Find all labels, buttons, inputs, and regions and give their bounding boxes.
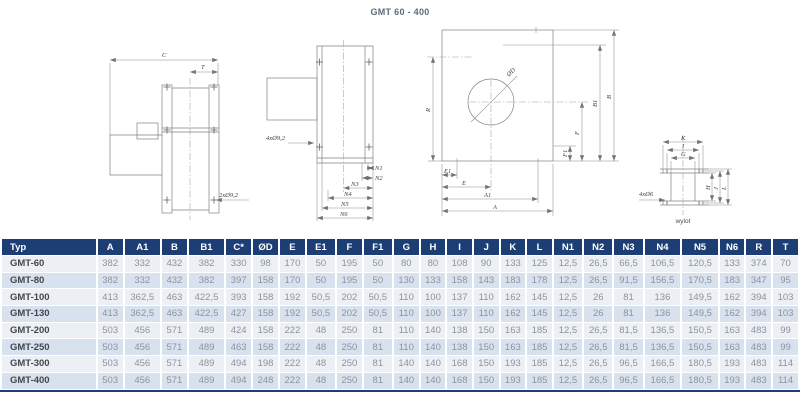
dim-label-j: J	[713, 186, 720, 190]
table-cell: 163	[720, 339, 745, 355]
table-cell: 50,5	[307, 306, 335, 322]
column-header: A	[98, 239, 123, 255]
page-title: GMT 60 - 400	[0, 7, 800, 17]
table-cell: 110	[394, 323, 419, 339]
table-cell: 50,5	[364, 289, 392, 305]
table-cell: 95	[773, 273, 798, 289]
table-cell: 26	[584, 306, 612, 322]
table-cell: 137	[447, 306, 472, 322]
table-cell: 96,5	[614, 373, 642, 389]
table-row: GMT-803823324323823971581705019550130133…	[2, 273, 798, 289]
table-cell: 108	[447, 256, 472, 272]
table-cell: 483	[746, 356, 771, 372]
table-cell: 250	[337, 323, 362, 339]
table-cell: 99	[773, 323, 798, 339]
table-cell: 81	[364, 323, 392, 339]
table-cell: 81,5	[614, 339, 642, 355]
table-cell: 163	[501, 323, 526, 339]
column-header: N2	[584, 239, 612, 255]
table-cell: 81	[364, 339, 392, 355]
table-cell: 456	[125, 373, 161, 389]
column-header: ØD	[253, 239, 278, 255]
table-cell: 422,5	[189, 306, 225, 322]
table-cell: 158	[253, 323, 278, 339]
table-cell: 382	[98, 256, 123, 272]
dim-label-l: L	[721, 186, 728, 191]
table-cell: 422,5	[189, 289, 225, 305]
table-cell: 489	[189, 373, 225, 389]
table-cell: 494	[226, 356, 251, 372]
dim-label-n1: N1	[374, 165, 383, 172]
table-cell: 248	[253, 373, 278, 389]
table-cell: 489	[189, 323, 225, 339]
table-cell: 26	[584, 289, 612, 305]
table-cell: 158	[253, 306, 278, 322]
table-cell: 202	[337, 289, 362, 305]
column-header: K	[501, 239, 526, 255]
table-cell: 138	[447, 339, 472, 355]
row-label: GMT-250	[2, 339, 96, 355]
table-cell: 26,5	[584, 273, 612, 289]
table-cell: 382	[189, 273, 225, 289]
table-cell: 136	[645, 289, 681, 305]
table-cell: 193	[720, 373, 745, 389]
table-cell: 136	[645, 306, 681, 322]
table-cell: 12,5	[554, 356, 582, 372]
table-cell: 178	[527, 273, 552, 289]
table-cell: 26,5	[584, 339, 612, 355]
table-cell: 170	[280, 256, 305, 272]
dim-label-n6: N6	[339, 211, 348, 218]
table-cell: 456	[125, 323, 161, 339]
table-cell: 48	[307, 356, 335, 372]
table-cell: 195	[337, 256, 362, 272]
table-cell: 110	[474, 306, 499, 322]
column-header: B1	[189, 239, 225, 255]
table-cell: 50,5	[364, 306, 392, 322]
table-cell: 332	[125, 256, 161, 272]
table-cell: 456	[125, 356, 161, 372]
table-cell: 12,5	[554, 273, 582, 289]
table-cell: 483	[746, 339, 771, 355]
table-cell: 100	[421, 289, 446, 305]
table-cell: 168	[447, 373, 472, 389]
table-cell: 382	[98, 273, 123, 289]
table-cell: 162	[720, 289, 745, 305]
row-label: GMT-200	[2, 323, 96, 339]
dim-label-a: A	[492, 204, 497, 211]
table-cell: 185	[527, 339, 552, 355]
table-cell: 222	[280, 323, 305, 339]
table-cell: 99	[773, 339, 798, 355]
dim-label-h: H	[705, 185, 712, 191]
table-cell: 150	[474, 356, 499, 372]
table-cell: 120,5	[682, 256, 718, 272]
datasheet-page: GMT 60 - 400 C T 2xØ9,2	[0, 0, 800, 414]
table-cell: 362,5	[125, 289, 161, 305]
table-cell: 98	[253, 256, 278, 272]
table-cell: 114	[773, 356, 798, 372]
table-cell: 149,5	[682, 306, 718, 322]
table-cell: 140	[421, 323, 446, 339]
table-cell: 162	[501, 289, 526, 305]
table-cell: 150	[474, 373, 499, 389]
hole-marks	[316, 59, 373, 151]
hole-callout: 4xØ9,2	[266, 135, 286, 142]
table-cell: 163	[501, 339, 526, 355]
table-cell: 413	[98, 306, 123, 322]
table-cell: 192	[280, 306, 305, 322]
table-cell: 91,5	[614, 273, 642, 289]
table-cell: 125	[527, 256, 552, 272]
table-cell: 382	[189, 256, 225, 272]
table-cell: 81	[364, 373, 392, 389]
table-cell: 394	[746, 306, 771, 322]
table-cell: 180,5	[682, 356, 718, 372]
table-cell: 195	[337, 273, 362, 289]
column-header: E	[280, 239, 305, 255]
table-cell: 50	[364, 273, 392, 289]
table-cell: 397	[226, 273, 251, 289]
table-cell: 162	[501, 306, 526, 322]
table-cell: 489	[189, 339, 225, 355]
table-cell: 12,5	[554, 339, 582, 355]
table-cell: 250	[337, 356, 362, 372]
column-header: F1	[364, 239, 392, 255]
table-cell: 114	[773, 373, 798, 389]
drawing-plate-view: ØD R F1 F B1 B E1 E A1 A	[425, 18, 637, 230]
table-cell: 393	[226, 289, 251, 305]
table-cell: 222	[280, 339, 305, 355]
table-cell: 26,5	[584, 323, 612, 339]
table-cell: 198	[253, 356, 278, 372]
table-cell: 463	[162, 306, 187, 322]
table-cell: 136,5	[645, 323, 681, 339]
table-cell: 489	[189, 356, 225, 372]
row-label: GMT-400	[2, 373, 96, 389]
dim-label-n3: N3	[350, 181, 359, 188]
table-cell: 140	[394, 356, 419, 372]
dim-label-g: G	[681, 151, 686, 158]
table-cell: 162	[720, 306, 745, 322]
column-header: T	[773, 239, 798, 255]
table-cell: 158	[253, 339, 278, 355]
table-cell: 463	[162, 289, 187, 305]
table-cell: 90	[474, 256, 499, 272]
table-cell: 149,5	[682, 289, 718, 305]
table-cell: 80	[394, 256, 419, 272]
dim-label-a1: A1	[483, 192, 491, 199]
table-cell: 362,5	[125, 306, 161, 322]
row-label: GMT-60	[2, 256, 96, 272]
row-label: GMT-80	[2, 273, 96, 289]
table-cell: 158	[447, 273, 472, 289]
table-cell: 222	[280, 373, 305, 389]
table-row: GMT-250503456571489463158222482508111014…	[2, 339, 798, 355]
table-cell: 150,5	[682, 323, 718, 339]
dim-label-b1: B1	[592, 100, 599, 107]
column-header: J	[474, 239, 499, 255]
dim-label-f: F	[574, 130, 581, 136]
table-cell: 80	[421, 256, 446, 272]
table-cell: 185	[527, 373, 552, 389]
dim-label-n2: N2	[374, 175, 383, 182]
table-cell: 483	[746, 323, 771, 339]
table-cell: 106,5	[645, 256, 681, 272]
table-cell: 413	[98, 289, 123, 305]
dim-label-n5: N5	[340, 201, 349, 208]
column-header: N3	[614, 239, 642, 255]
table-cell: 145	[527, 306, 552, 322]
table-cell: 483	[746, 373, 771, 389]
table-cell: 503	[98, 323, 123, 339]
table-cell: 133	[501, 256, 526, 272]
table-cell: 185	[527, 323, 552, 339]
table-cell: 571	[162, 323, 187, 339]
table-cell: 374	[746, 256, 771, 272]
column-header: R	[746, 239, 771, 255]
table-cell: 70	[773, 256, 798, 272]
table-cell: 140	[421, 373, 446, 389]
dim-label-e: E	[461, 180, 466, 187]
column-header: C*	[226, 239, 251, 255]
column-header: I	[447, 239, 472, 255]
table-cell: 50,5	[307, 289, 335, 305]
table-cell: 166,5	[645, 356, 681, 372]
table-cell: 81	[614, 289, 642, 305]
table-cell: 193	[501, 356, 526, 372]
column-header: N4	[645, 239, 681, 255]
table-cell: 140	[394, 373, 419, 389]
table-cell: 26,5	[584, 373, 612, 389]
dim-label-i: I	[681, 143, 685, 150]
table-cell: 48	[307, 339, 335, 355]
column-header: B	[162, 239, 187, 255]
spec-table: TypAA1BB1C*ØDEE1FF1GHIJKLN1N2N3N4N5N6RT …	[0, 238, 800, 392]
table-cell: 133	[720, 256, 745, 272]
table-cell: 81	[364, 356, 392, 372]
table-cell: 138	[447, 323, 472, 339]
dim-label-r: R	[425, 108, 432, 113]
table-cell: 193	[501, 373, 526, 389]
table-cell: 456	[125, 339, 161, 355]
table-cell: 166,5	[645, 373, 681, 389]
table-cell: 463	[226, 339, 251, 355]
table-row: GMT-200503456571489424158222482508111014…	[2, 323, 798, 339]
column-header: H	[421, 239, 446, 255]
table-cell: 26,5	[584, 256, 612, 272]
drawing-outlet-view: K I G H J L 4xØ6 wylot	[638, 130, 793, 230]
table-cell: 81,5	[614, 323, 642, 339]
table-cell: 193	[720, 356, 745, 372]
table-cell: 158	[253, 289, 278, 305]
table-cell: 140	[421, 356, 446, 372]
table-cell: 137	[447, 289, 472, 305]
table-cell: 432	[162, 256, 187, 272]
table-cell: 110	[474, 289, 499, 305]
table-cell: 503	[98, 339, 123, 355]
table-cell: 110	[394, 306, 419, 322]
table-row: GMT-603823324323823309817050195508080108…	[2, 256, 798, 272]
table-cell: 96,5	[614, 356, 642, 372]
table-cell: 183	[501, 273, 526, 289]
table-cell: 50	[307, 256, 335, 272]
column-header: N5	[682, 239, 718, 255]
table-header-row: TypAA1BB1C*ØDEE1FF1GHIJKLN1N2N3N4N5N6RT	[2, 239, 798, 255]
dim-label-k: K	[680, 135, 686, 142]
spec-table-head: TypAA1BB1C*ØDEE1FF1GHIJKLN1N2N3N4N5N6RT	[2, 239, 798, 255]
table-cell: 136,5	[645, 339, 681, 355]
table-cell: 103	[773, 289, 798, 305]
table-cell: 140	[421, 339, 446, 355]
table-cell: 150	[474, 323, 499, 339]
table-cell: 12,5	[554, 289, 582, 305]
column-header: G	[394, 239, 419, 255]
table-cell: 12,5	[554, 306, 582, 322]
table-cell: 130	[394, 273, 419, 289]
table-cell: 48	[307, 323, 335, 339]
spec-table-body: GMT-603823324323823309817050195508080108…	[2, 256, 798, 389]
table-cell: 250	[337, 373, 362, 389]
table-cell: 150,5	[682, 339, 718, 355]
table-row: GMT-400503456571489494248222482508114014…	[2, 373, 798, 389]
column-header: F	[337, 239, 362, 255]
column-header: L	[527, 239, 552, 255]
column-header: A1	[125, 239, 161, 255]
table-cell: 50	[364, 256, 392, 272]
table-cell: 133	[421, 273, 446, 289]
table-cell: 427	[226, 306, 251, 322]
hole-callout: 4xØ6	[639, 191, 654, 198]
table-cell: 250	[337, 339, 362, 355]
table-row: GMT-100413362,5463422,539315819250,52025…	[2, 289, 798, 305]
dim-label-n4: N4	[343, 191, 352, 198]
table-cell: 163	[720, 323, 745, 339]
dim-label-c: C	[162, 52, 167, 59]
row-label: GMT-300	[2, 356, 96, 372]
dim-label-t: T	[201, 64, 205, 71]
table-cell: 170	[280, 273, 305, 289]
table-cell: 12,5	[554, 373, 582, 389]
table-cell: 12,5	[554, 323, 582, 339]
table-cell: 571	[162, 339, 187, 355]
table-cell: 347	[746, 273, 771, 289]
hole-callout: 2xØ9,2	[219, 192, 239, 199]
table-cell: 170,5	[682, 273, 718, 289]
table-cell: 183	[720, 273, 745, 289]
table-cell: 180,5	[682, 373, 718, 389]
table-cell: 158	[253, 273, 278, 289]
table-row: GMT-300503456571489494198222482508114014…	[2, 356, 798, 372]
drawing-side-view: C T 2xØ9,2	[85, 28, 257, 230]
table-cell: 50	[307, 273, 335, 289]
row-label: GMT-130	[2, 306, 96, 322]
table-cell: 185	[527, 356, 552, 372]
table-cell: 145	[527, 289, 552, 305]
table-cell: 168	[447, 356, 472, 372]
table-cell: 503	[98, 373, 123, 389]
table-cell: 394	[746, 289, 771, 305]
table-cell: 150	[474, 339, 499, 355]
dim-label-f1: F1	[562, 150, 569, 158]
table-cell: 494	[226, 373, 251, 389]
table-cell: 571	[162, 356, 187, 372]
column-header: N1	[554, 239, 582, 255]
column-header: E1	[307, 239, 335, 255]
table-cell: 81	[614, 306, 642, 322]
table-cell: 424	[226, 323, 251, 339]
table-cell: 332	[125, 273, 161, 289]
row-label: GMT-100	[2, 289, 96, 305]
table-cell: 143	[474, 273, 499, 289]
column-header: Typ	[2, 239, 96, 255]
table-cell: 571	[162, 373, 187, 389]
column-header: N6	[720, 239, 745, 255]
table-cell: 110	[394, 289, 419, 305]
table-cell: 26,5	[584, 356, 612, 372]
table-cell: 110	[394, 339, 419, 355]
table-row: GMT-130413362,5463422,542715819250,52025…	[2, 306, 798, 322]
dim-label-b: B	[606, 95, 613, 99]
dim-label-e1: E1	[443, 168, 451, 175]
table-cell: 330	[226, 256, 251, 272]
table-cell: 432	[162, 273, 187, 289]
table-cell: 48	[307, 373, 335, 389]
table-cell: 66,5	[614, 256, 642, 272]
table-cell: 12,5	[554, 256, 582, 272]
table-cell: 202	[337, 306, 362, 322]
table-cell: 503	[98, 356, 123, 372]
drawing-front-view: 4xØ9,2 N1 N2 N3 N4 N5 N6	[258, 40, 390, 232]
hole-marks	[164, 84, 218, 204]
outlet-caption: wylot	[675, 218, 691, 225]
table-cell: 222	[280, 356, 305, 372]
table-cell: 192	[280, 289, 305, 305]
table-cell: 100	[421, 306, 446, 322]
table-cell: 156,5	[645, 273, 681, 289]
table-cell: 103	[773, 306, 798, 322]
